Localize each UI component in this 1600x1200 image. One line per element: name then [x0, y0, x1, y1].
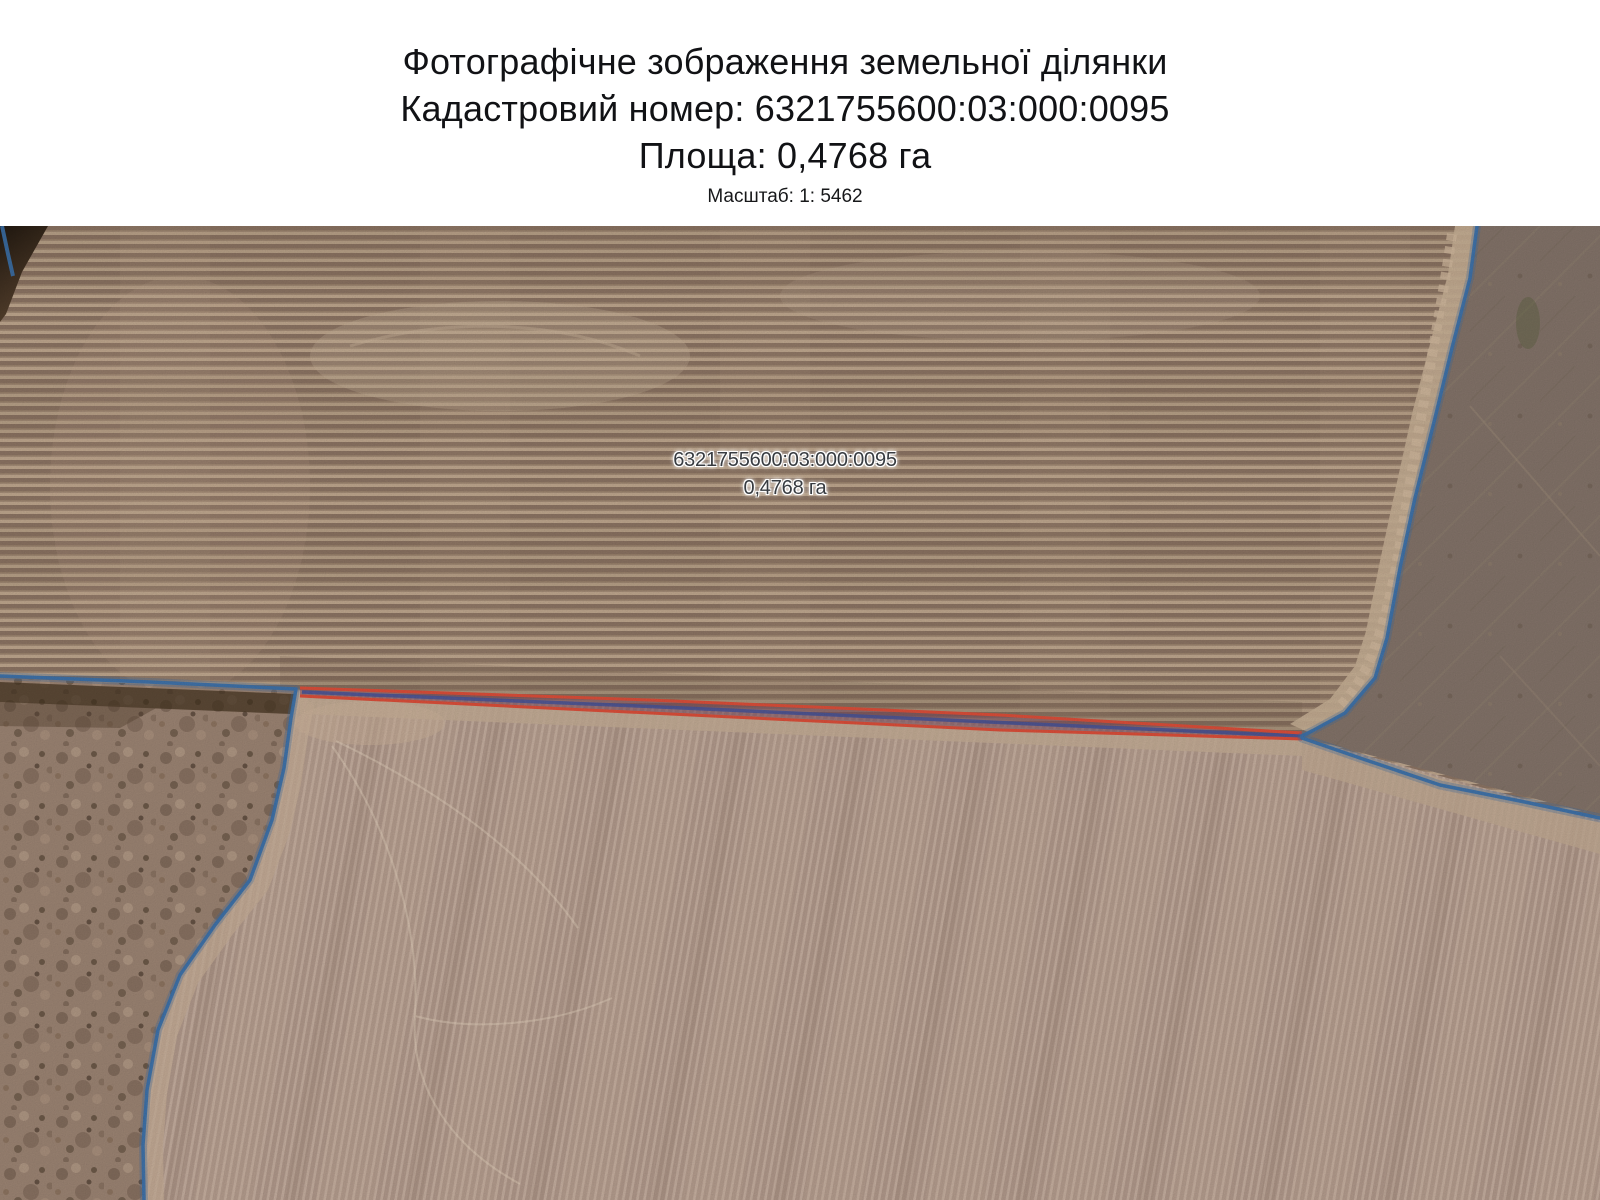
- header: Фотографічне зображення земельної ділянк…: [0, 0, 1570, 210]
- scale-line: Масштаб: 1: 5462: [0, 184, 1570, 210]
- photo-noise-overlay: [0, 226, 1600, 1200]
- map-photo: [0, 226, 1600, 1200]
- cadastral-number-line: Кадастровий номер: 6321755600:03:000:009…: [0, 85, 1570, 132]
- area-line: Площа: 0,4768 га: [0, 132, 1570, 179]
- aerial-photo: [0, 226, 1600, 1200]
- page-title: Фотографічне зображення земельної ділянк…: [0, 38, 1570, 85]
- page-root: { "header": { "title": "Фотографічне зоб…: [0, 0, 1600, 1200]
